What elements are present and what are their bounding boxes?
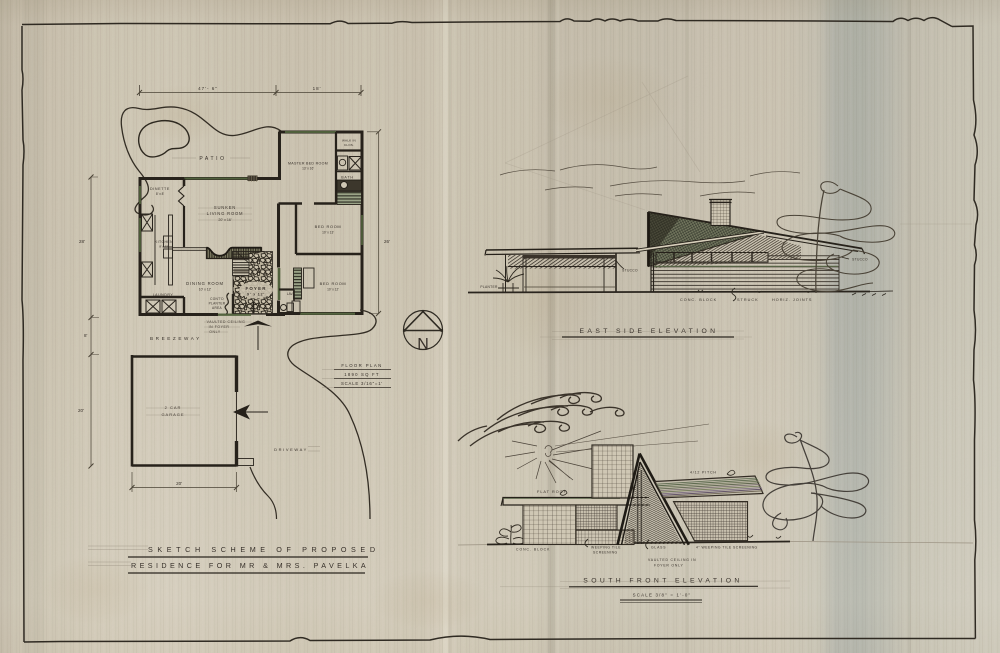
svg-text:CLOS.: CLOS. (344, 143, 354, 147)
svg-text:GARAGE: GARAGE (161, 412, 184, 417)
svg-text:WALK IN: WALK IN (342, 139, 356, 143)
svg-text:FLOOR PLAN: FLOOR PLAN (341, 363, 382, 368)
svg-text:18': 18' (313, 86, 322, 91)
svg-text:DRIVEWAY: DRIVEWAY (274, 447, 308, 452)
svg-text:SCREENING: SCREENING (593, 551, 618, 555)
svg-text:10' x 12': 10' x 12' (199, 288, 212, 292)
svg-text:8' x 8': 8' x 8' (156, 192, 165, 196)
svg-text:20': 20' (78, 408, 84, 413)
svg-text:RESIDENCE FOR MR & MRS.: RESIDENCE FOR MR & MRS. PAVELKA (131, 561, 369, 570)
svg-text:STUCCO: STUCCO (852, 258, 868, 262)
svg-text:SKETCH SCHEME OF PROPOSE: SKETCH SCHEME OF PROPOSED (148, 545, 380, 554)
svg-text:FOYER: FOYER (245, 286, 266, 291)
svg-text:PLANTER: PLANTER (480, 285, 498, 289)
svg-text:BATH: BATH (341, 176, 354, 180)
svg-text:1890 SQ FT: 1890 SQ FT (344, 372, 379, 377)
svg-text:SCALE 3/16"=1': SCALE 3/16"=1' (341, 381, 383, 386)
svg-text:HORIZ. JOINTS: HORIZ. JOINTS (772, 298, 812, 302)
svg-text:47'- 6": 47'- 6" (198, 86, 218, 91)
svg-text:N: N (417, 336, 429, 353)
svg-text:MASTER BED ROOM: MASTER BED ROOM (288, 162, 328, 166)
svg-text:CONC. BLOCK: CONC. BLOCK (516, 548, 550, 552)
svg-text:LIVING ROOM: LIVING ROOM (207, 211, 244, 216)
svg-text:CONT'D: CONT'D (210, 297, 224, 301)
svg-text:STRUCK: STRUCK (737, 298, 759, 302)
svg-text:10' x 12': 10' x 12' (327, 288, 339, 292)
svg-text:FOYER ONLY: FOYER ONLY (654, 564, 684, 568)
svg-text:BREEZEWAY: BREEZEWAY (150, 336, 202, 341)
svg-text:DINING ROOM: DINING ROOM (186, 281, 224, 286)
svg-text:20': 20' (176, 481, 182, 486)
svg-text:BED ROOM: BED ROOM (315, 224, 342, 229)
svg-text:FLAT ROOF: FLAT ROOF (537, 490, 567, 494)
svg-text:CONC. BLOCK: CONC. BLOCK (680, 298, 717, 302)
svg-text:26': 26' (384, 239, 390, 244)
svg-text:BED ROOM: BED ROOM (320, 281, 347, 286)
svg-text:LAV.: LAV. (287, 292, 294, 296)
svg-text:4/12 PITCH: 4/12 PITCH (690, 471, 717, 475)
svg-text:8': 8' (84, 333, 88, 338)
svg-text:GLASS: GLASS (651, 546, 666, 550)
svg-text:13' x 16': 13' x 16' (302, 167, 314, 171)
svg-text:DINETTE: DINETTE (150, 187, 170, 191)
svg-text:LAUNDRY: LAUNDRY (153, 293, 174, 297)
svg-text:8' x 13': 8' x 13' (159, 245, 169, 249)
svg-text:SCALE 3/8" = 1'-0": SCALE 3/8" = 1'-0" (633, 593, 692, 598)
svg-text:SUNKEN: SUNKEN (214, 205, 236, 210)
svg-text:4" WEEPING TILE SCREENING: 4" WEEPING TILE SCREENING (696, 546, 758, 550)
svg-text:KITCHEN: KITCHEN (155, 240, 173, 244)
svg-text:PLANTER: PLANTER (209, 302, 226, 306)
svg-text:9' x 12': 9' x 12' (247, 293, 265, 297)
svg-text:2 CAR: 2 CAR (165, 405, 182, 410)
svg-text:AREA: AREA (212, 306, 222, 310)
svg-text:WEEPING TILE: WEEPING TILE (591, 546, 621, 550)
svg-text:PATIO: PATIO (199, 156, 226, 162)
svg-text:10' x 13': 10' x 13' (322, 231, 334, 235)
svg-text:28': 28' (79, 239, 85, 244)
svg-text:STUCCO: STUCCO (622, 269, 638, 273)
svg-text:VAULTED CEILING IN: VAULTED CEILING IN (648, 558, 696, 562)
